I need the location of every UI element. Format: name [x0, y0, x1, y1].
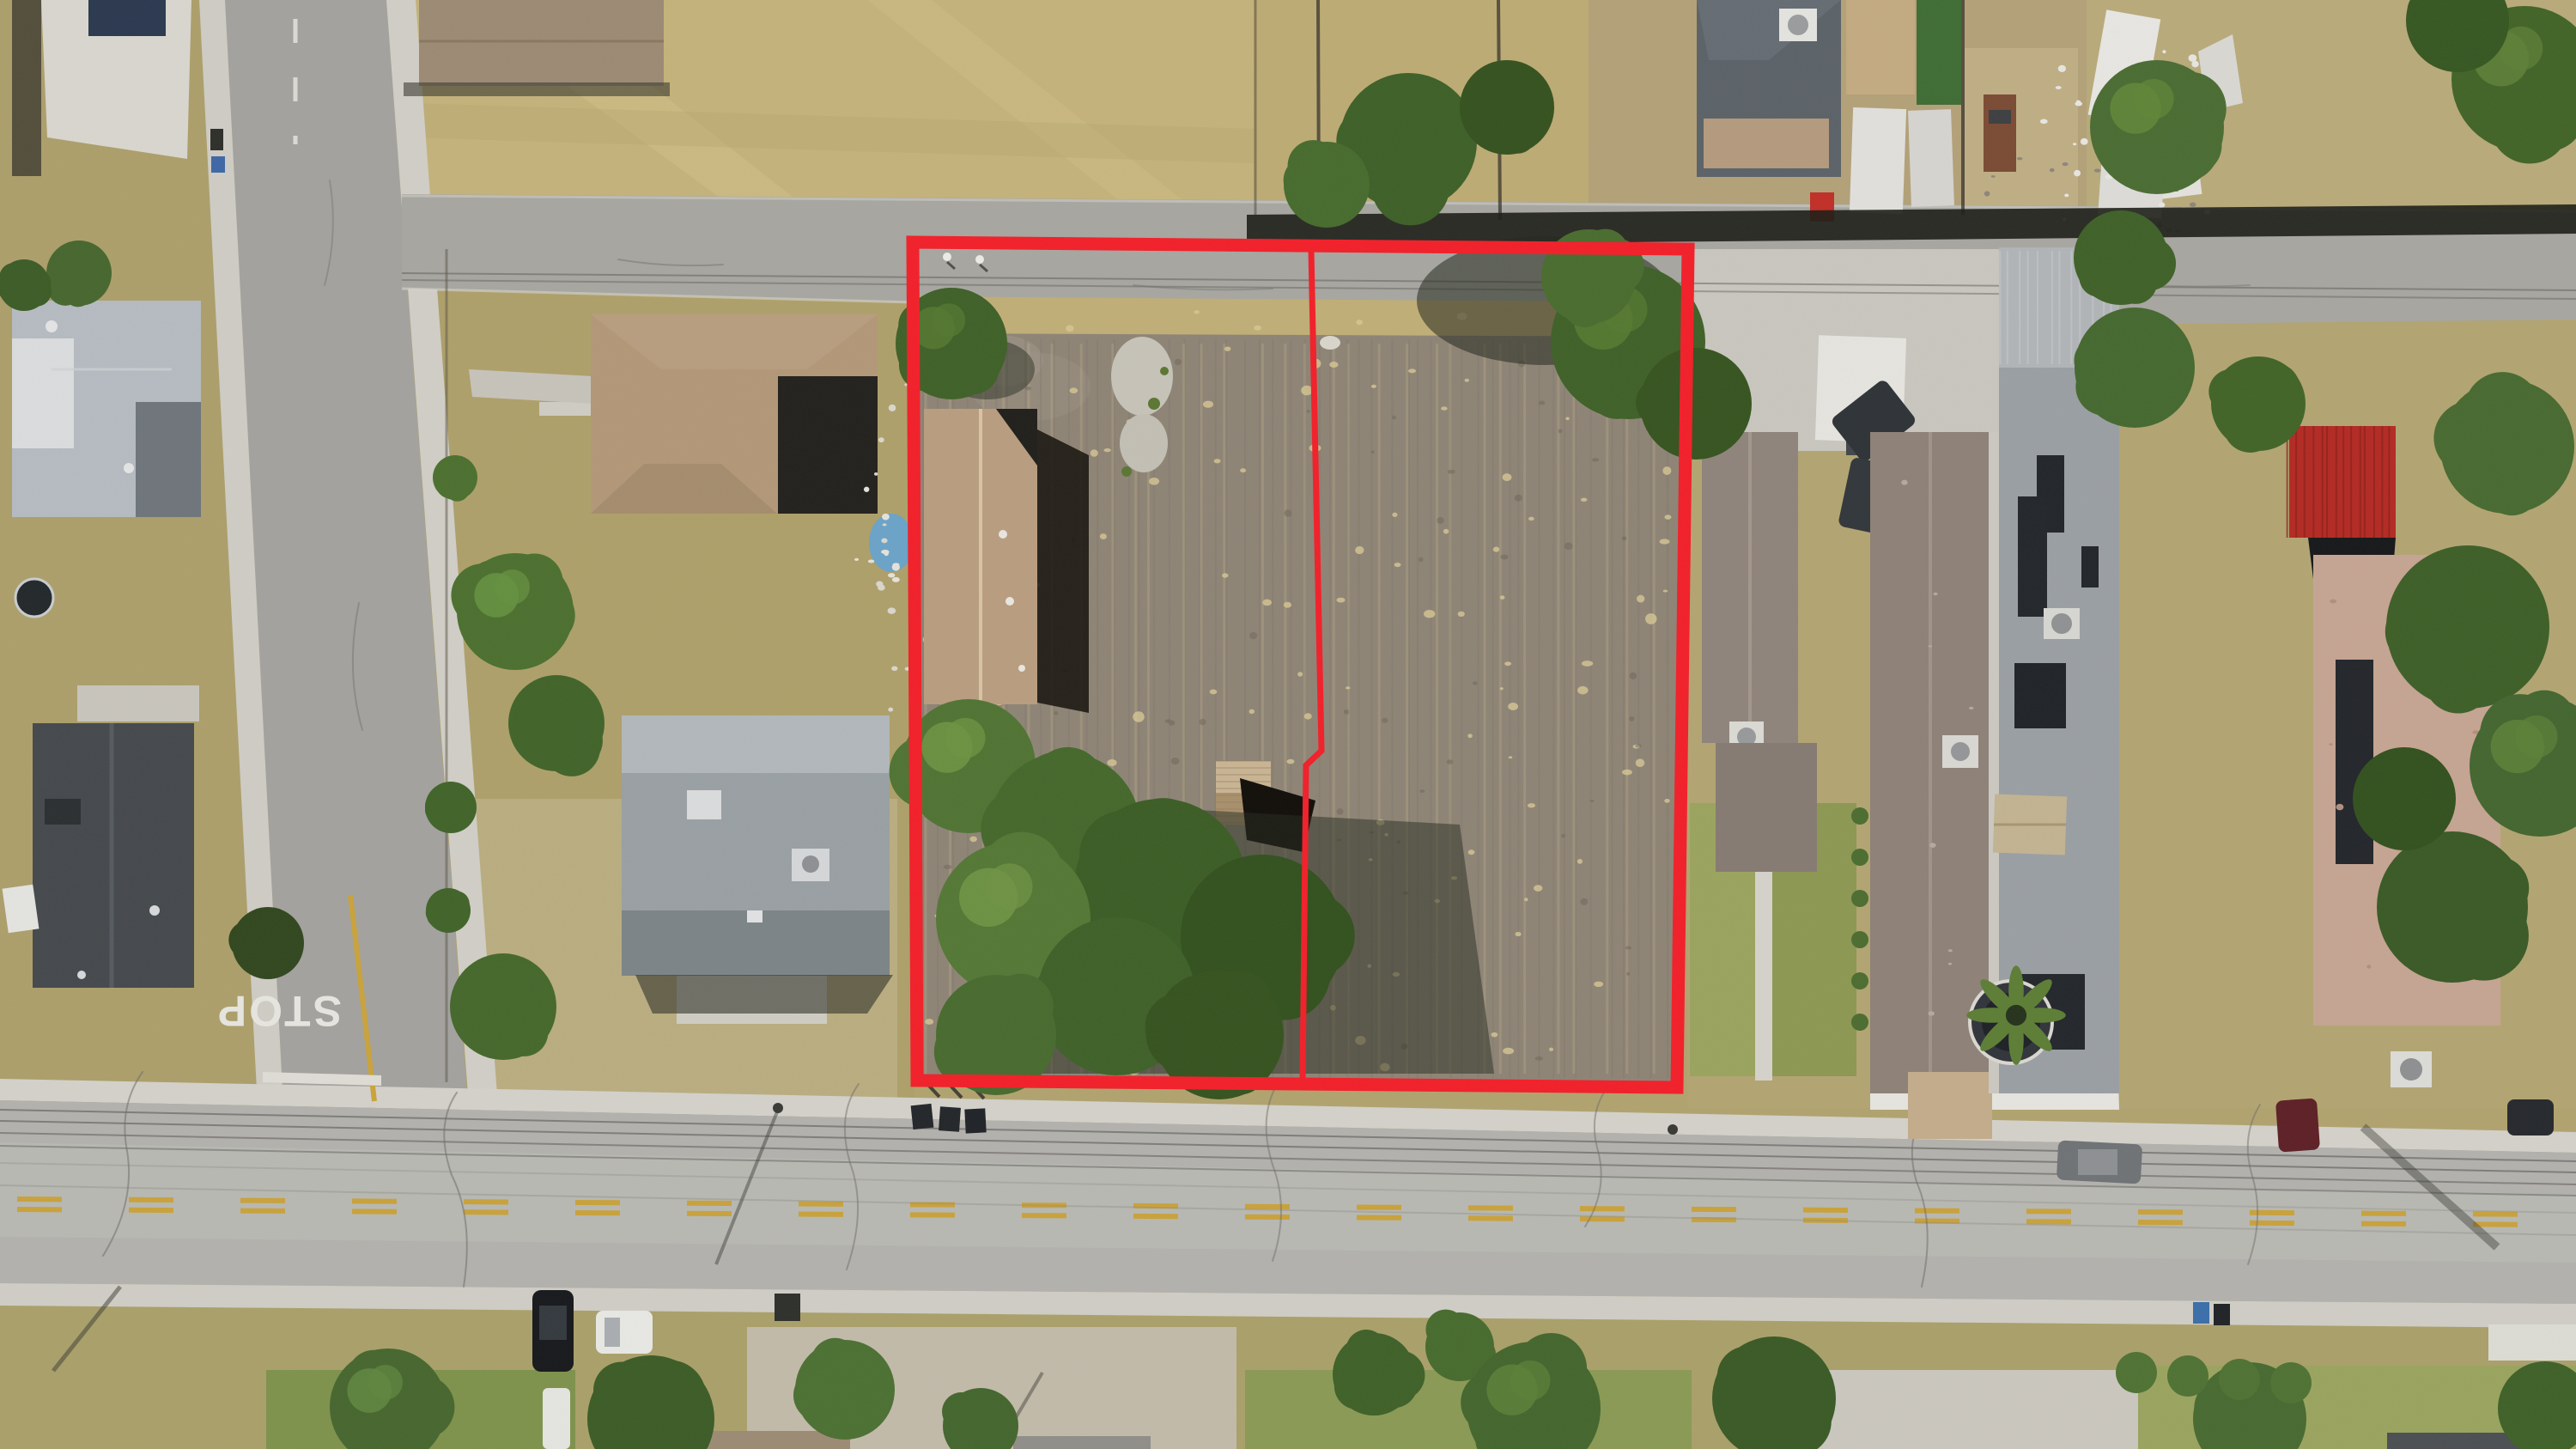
photo-grain-overlay [0, 0, 2576, 1449]
aerial-photo-container: STOP [0, 0, 2576, 1449]
aerial-photo: STOP [0, 0, 2576, 1449]
